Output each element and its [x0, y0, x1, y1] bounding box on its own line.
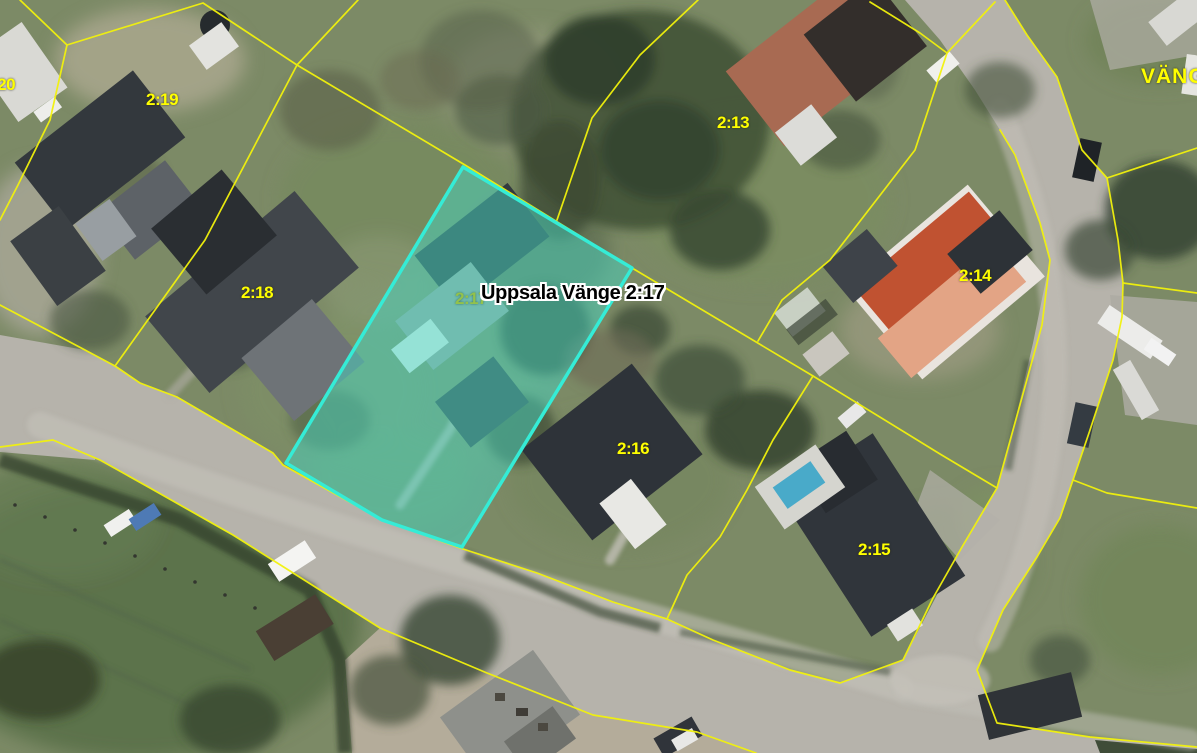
aerial-basemap	[0, 0, 1197, 753]
aerial-map-viewport[interactable]: 2:20 2:19 2:18 2:13 2:14 2:16 2:15 2:17 …	[0, 0, 1197, 753]
